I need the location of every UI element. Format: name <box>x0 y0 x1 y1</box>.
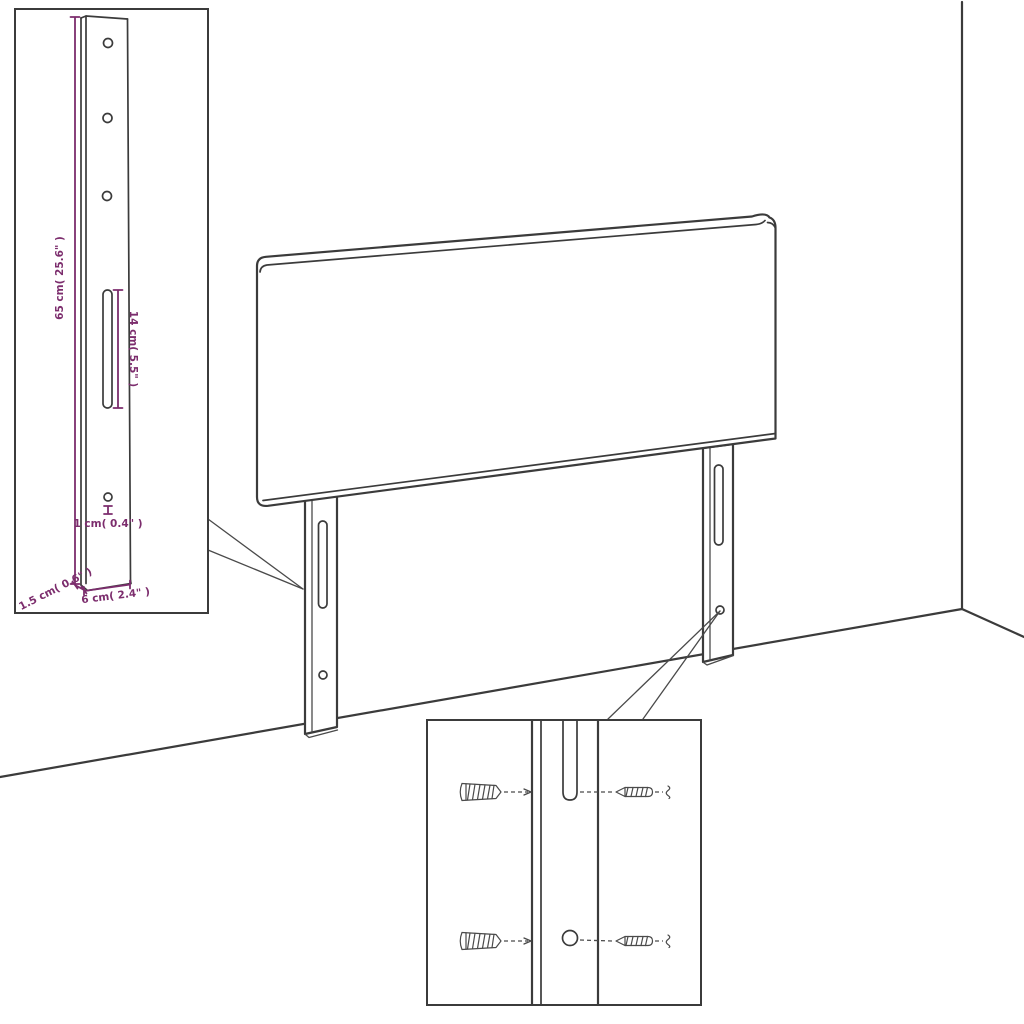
product-diagram-page: 65 cm( 25.6" ) 14 cm( 5.5" ) 1 cm( 0.4" … <box>0 0 1024 1024</box>
left-leg <box>305 488 338 738</box>
callout-line-bracket-lower <box>208 550 303 589</box>
slot-dimension-label: 14 cm( 5.5" ) <box>127 311 139 387</box>
right-leg <box>703 444 734 665</box>
mounting-inset-frame <box>427 720 701 1005</box>
left-leg-body <box>305 488 337 734</box>
callout-line-bracket-upper <box>208 519 303 589</box>
hole-dimension-label: 1 cm( 0.4" ) <box>73 518 142 530</box>
mounting-detail-inset <box>427 720 701 1005</box>
height-dimension-label: 65 cm( 25.6" ) <box>54 236 66 320</box>
headboard-assembly-diagram: 65 cm( 25.6" ) 14 cm( 5.5" ) 1 cm( 0.4" … <box>0 0 1024 1024</box>
headboard-panel-outline <box>257 214 776 505</box>
headboard-panel <box>257 214 776 505</box>
wall-floor-edge-right <box>962 609 1024 637</box>
bracket-detail-inset: 65 cm( 25.6" ) 14 cm( 5.5" ) 1 cm( 0.4" … <box>15 9 208 613</box>
callout-line-mounting-left <box>608 611 720 719</box>
